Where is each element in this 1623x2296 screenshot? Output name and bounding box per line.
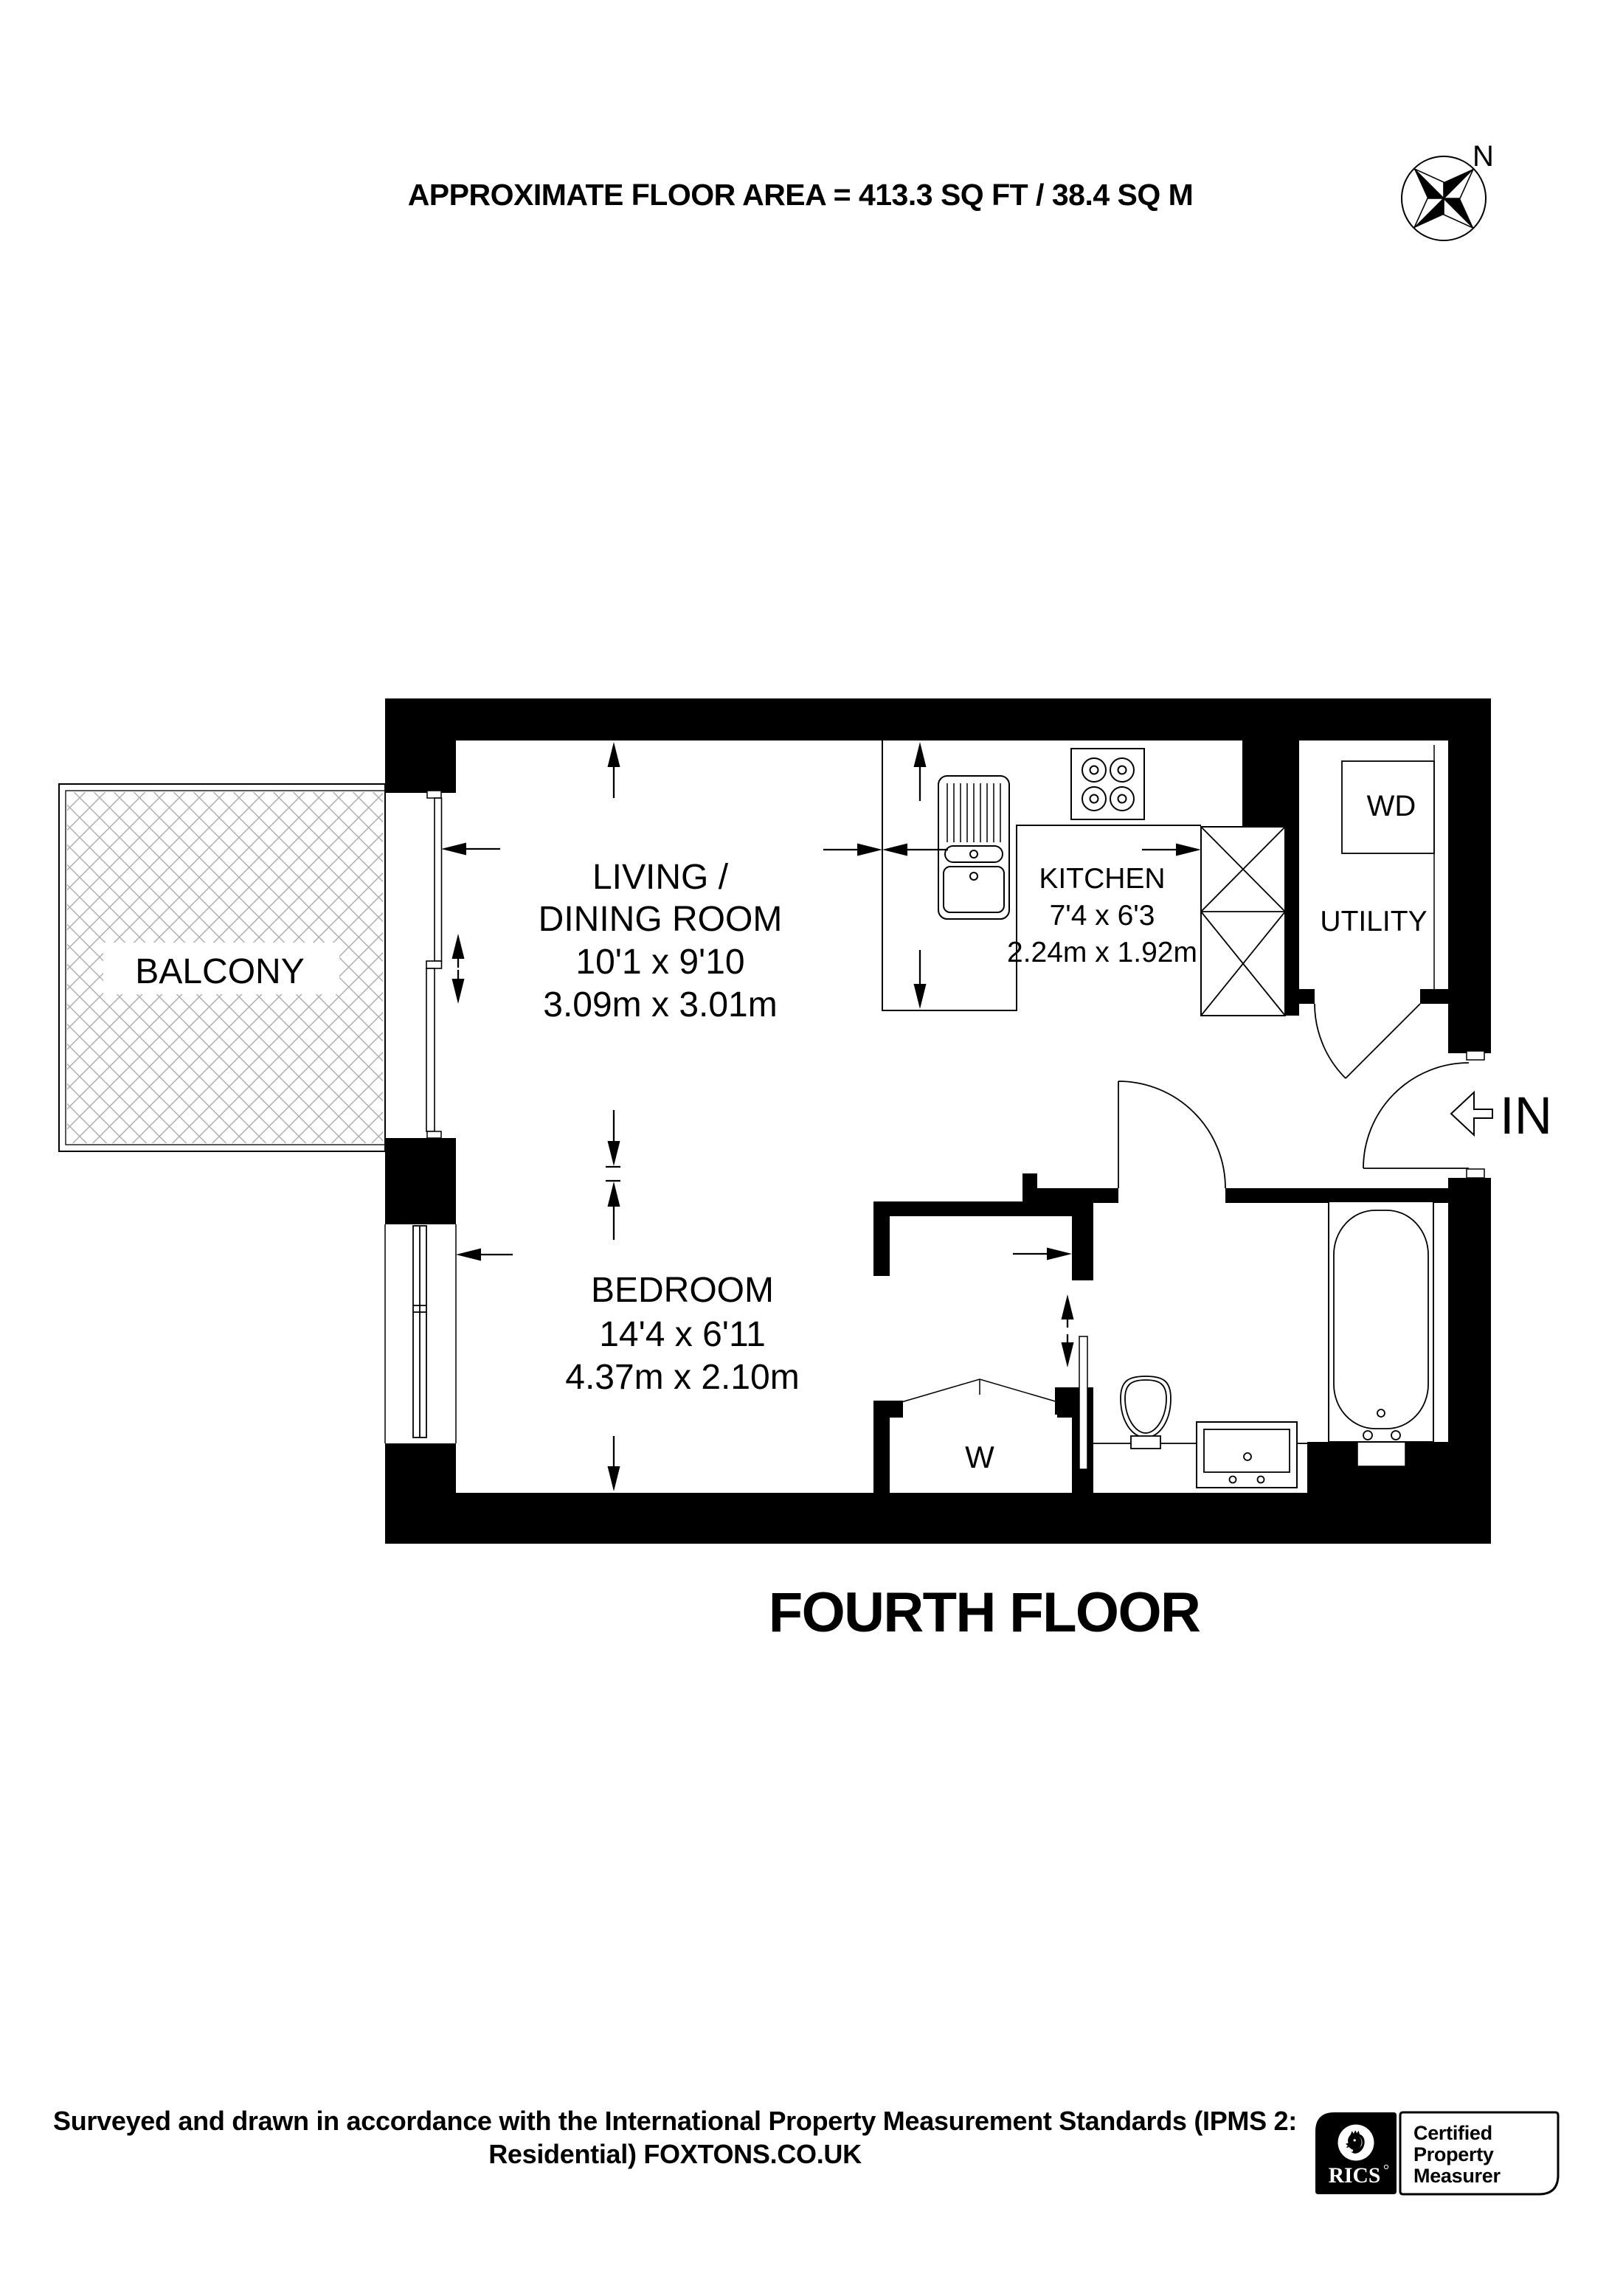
svg-text:BEDROOM: BEDROOM xyxy=(591,1271,774,1310)
svg-text:APPROXIMATE FLOOR AREA = 413.3: APPROXIMATE FLOOR AREA = 413.3 SQ FT / 3… xyxy=(408,178,1194,212)
svg-text:KITCHEN: KITCHEN xyxy=(1039,863,1165,895)
svg-text:Certified: Certified xyxy=(1413,2122,1492,2144)
svg-text:Property: Property xyxy=(1413,2143,1494,2165)
svg-text:4.37m x 2.10m: 4.37m x 2.10m xyxy=(565,1358,799,1397)
svg-text:N: N xyxy=(1473,140,1494,173)
svg-text:Surveyed and drawn in accordan: Surveyed and drawn in accordance with th… xyxy=(53,2106,1297,2136)
svg-text:3.09m x 3.01m: 3.09m x 3.01m xyxy=(543,985,777,1024)
svg-text:7'4 x 6'3: 7'4 x 6'3 xyxy=(1050,900,1155,932)
svg-text:LIVING /: LIVING / xyxy=(592,858,729,897)
svg-text:DINING ROOM: DINING ROOM xyxy=(539,900,783,939)
svg-text:BALCONY: BALCONY xyxy=(135,952,304,991)
svg-text:W: W xyxy=(965,1440,994,1474)
svg-text:2.24m x 1.92m: 2.24m x 1.92m xyxy=(1007,937,1197,968)
svg-text:UTILITY: UTILITY xyxy=(1320,906,1427,937)
svg-text:Measurer: Measurer xyxy=(1413,2165,1501,2187)
svg-text:14'4 x 6'11: 14'4 x 6'11 xyxy=(599,1315,766,1354)
svg-text:Residential) FOXTONS.CO.UK: Residential) FOXTONS.CO.UK xyxy=(488,2139,862,2169)
svg-text:10'1 x 9'10: 10'1 x 9'10 xyxy=(575,943,744,982)
svg-text:RICS: RICS xyxy=(1329,2164,1381,2188)
svg-text:WD: WD xyxy=(1367,790,1416,822)
svg-text:FOURTH FLOOR: FOURTH FLOOR xyxy=(769,1581,1200,1644)
svg-text:IN: IN xyxy=(1500,1087,1552,1145)
